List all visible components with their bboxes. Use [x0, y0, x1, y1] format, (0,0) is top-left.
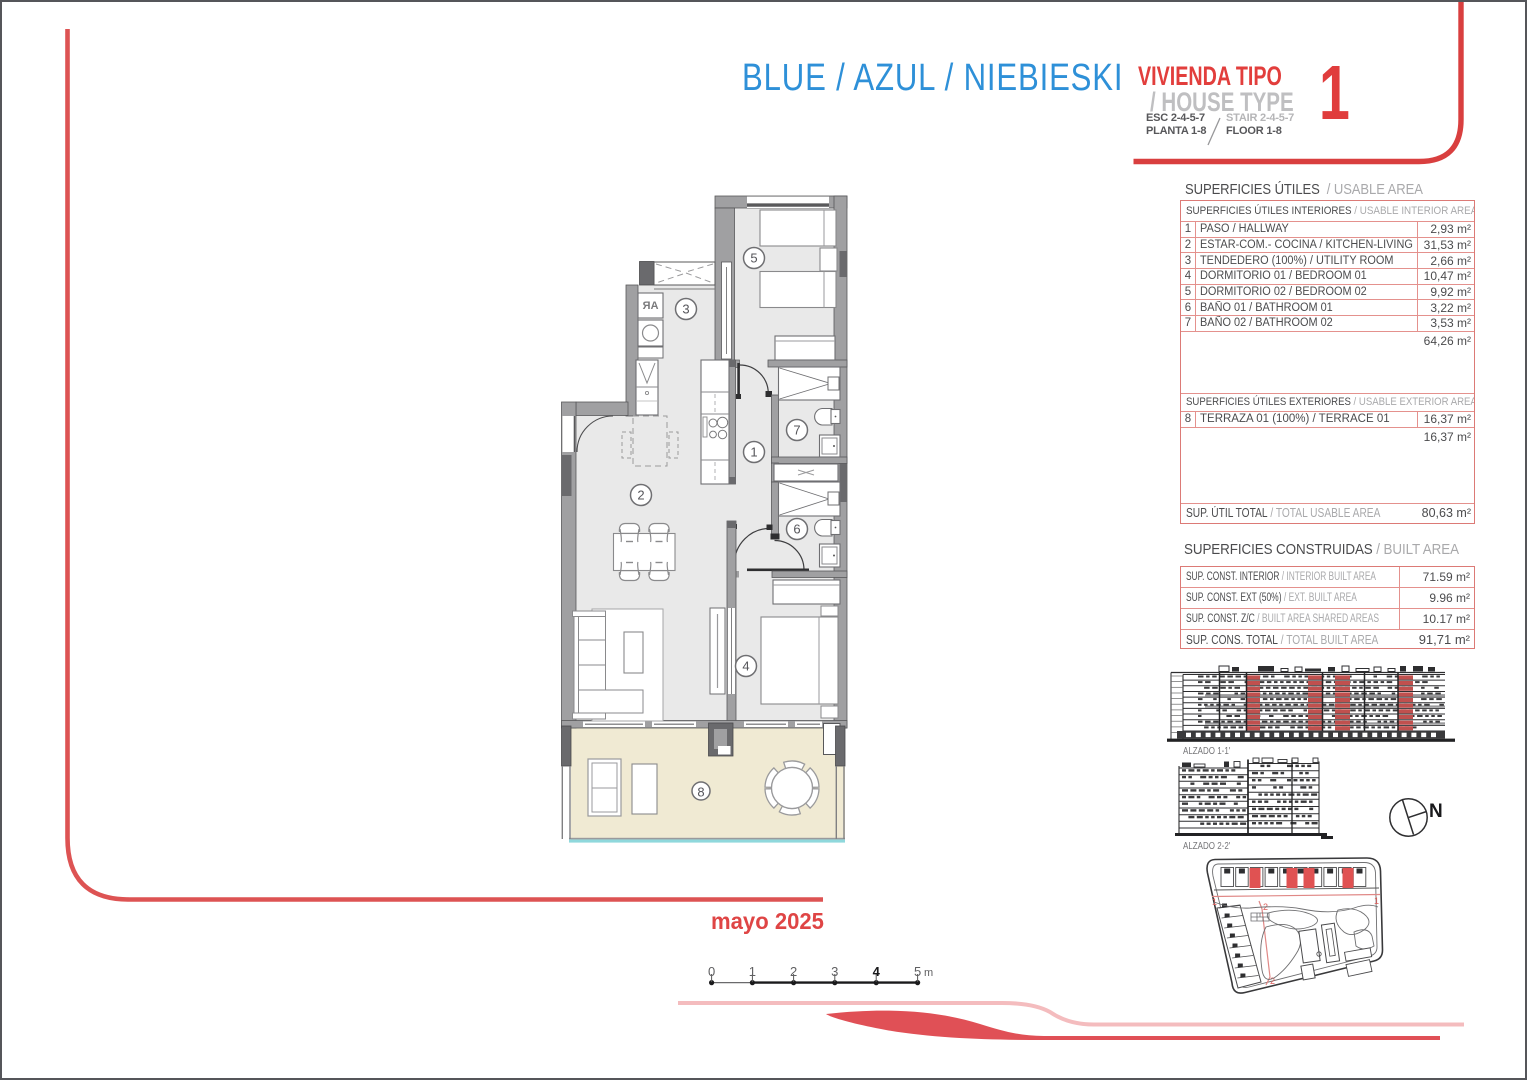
svg-text:1: 1: [750, 445, 757, 460]
svg-text:AR: AR: [643, 300, 659, 312]
svg-text:1: 1: [1374, 896, 1379, 906]
svg-text:N: N: [1429, 801, 1443, 822]
svg-text:3: 3: [682, 302, 689, 317]
svg-text:7: 7: [793, 423, 800, 438]
svg-text:2: 2: [637, 488, 644, 503]
svg-text:5: 5: [750, 251, 757, 266]
svg-text:4: 4: [873, 964, 881, 979]
svg-text:5: 5: [914, 964, 921, 979]
svg-text:8: 8: [697, 785, 704, 800]
svg-text:2: 2: [790, 964, 797, 979]
svg-text:1: 1: [749, 964, 756, 979]
svg-text:m: m: [924, 967, 933, 979]
svg-text:3: 3: [831, 964, 838, 979]
svg-text:4: 4: [742, 659, 749, 674]
svg-text:6: 6: [793, 522, 800, 537]
svg-text:0: 0: [708, 964, 715, 979]
